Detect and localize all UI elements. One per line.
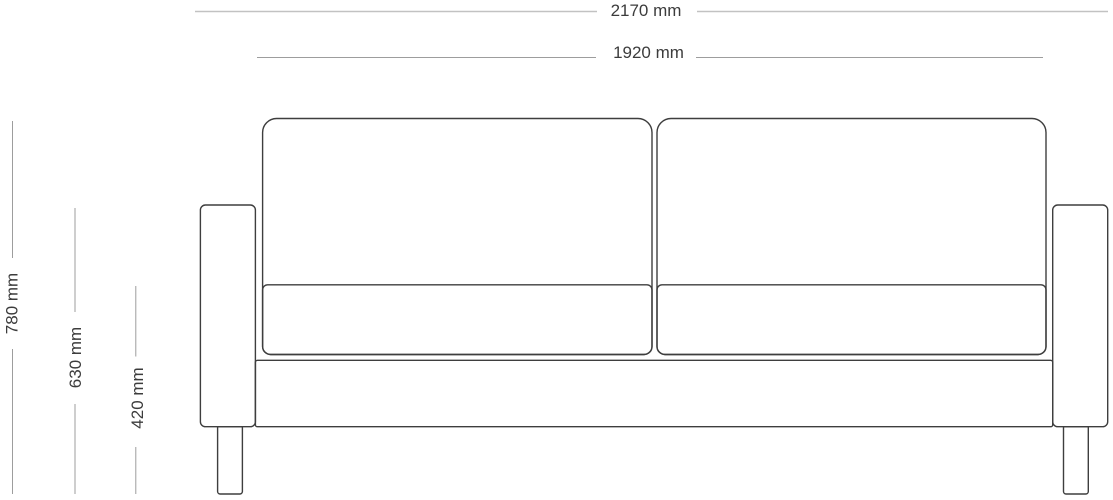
svg-text:630 mm: 630 mm — [66, 327, 85, 388]
svg-text:2170 mm: 2170 mm — [611, 1, 682, 20]
svg-text:1920 mm: 1920 mm — [613, 43, 684, 62]
svg-text:780 mm: 780 mm — [3, 273, 22, 334]
svg-text:420 mm: 420 mm — [128, 367, 147, 428]
